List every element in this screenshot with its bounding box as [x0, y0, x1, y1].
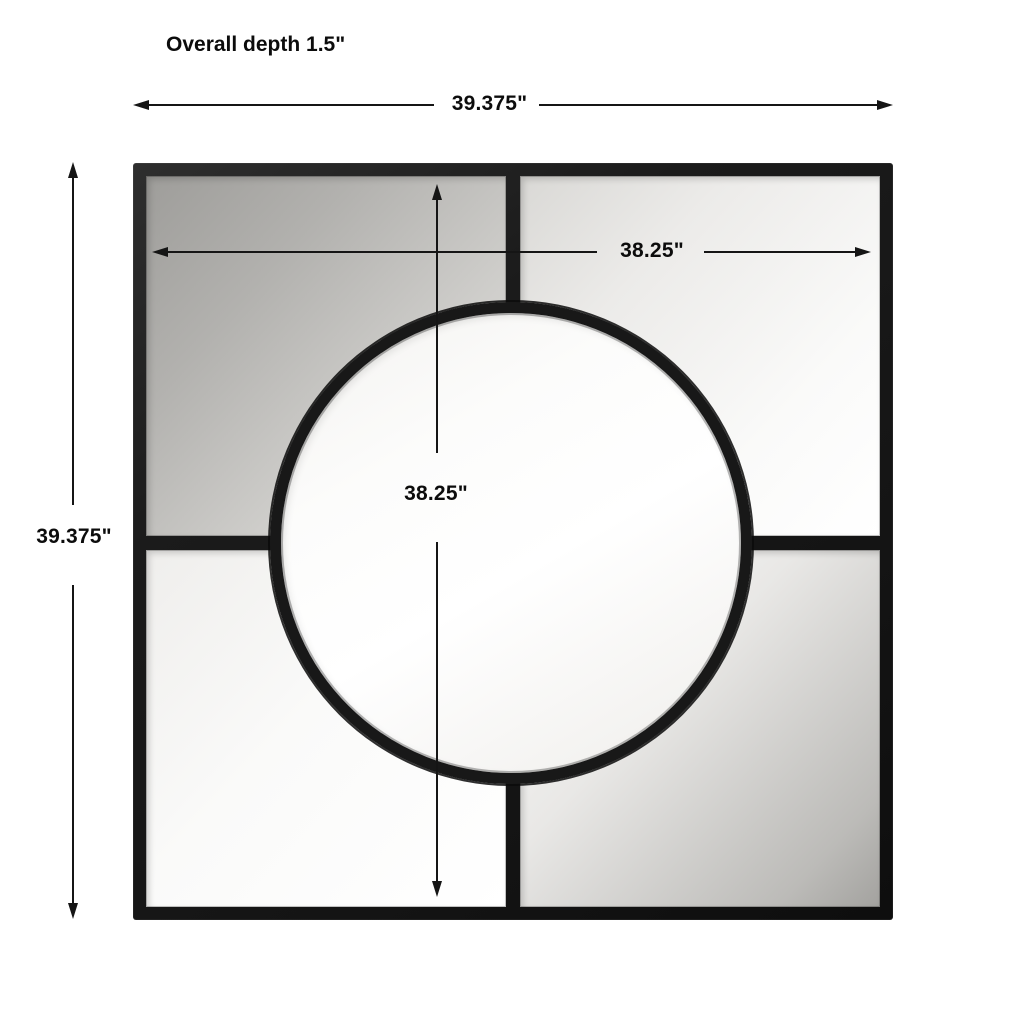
- dimension-line: [148, 104, 434, 106]
- inner-height-label: 38.25": [380, 482, 492, 506]
- arrow-right-icon: [855, 247, 871, 257]
- arrow-up-icon: [68, 162, 78, 178]
- dimension-line: [539, 104, 878, 106]
- dimension-line: [72, 585, 74, 904]
- arrow-down-icon: [432, 881, 442, 897]
- mirror-circle-pane: [270, 302, 752, 784]
- product-dimension-diagram: Overall depth 1.5" 39.375" 38.25" 39.375…: [0, 0, 1027, 1027]
- dimension-line: [436, 199, 438, 453]
- arrow-up-icon: [432, 184, 442, 200]
- arrow-left-icon: [152, 247, 168, 257]
- arrow-down-icon: [68, 903, 78, 919]
- mirror-frame: [133, 163, 893, 920]
- overall-depth-label: Overall depth 1.5": [166, 33, 345, 57]
- arrow-left-icon: [133, 100, 149, 110]
- outer-width-label: 39.375": [432, 92, 547, 116]
- dimension-line: [167, 251, 597, 253]
- outer-height-label: 39.375": [10, 525, 138, 549]
- dimension-line: [72, 177, 74, 505]
- arrow-right-icon: [877, 100, 893, 110]
- inner-width-label: 38.25": [597, 239, 707, 263]
- dimension-line: [436, 542, 438, 882]
- dimension-line: [704, 251, 856, 253]
